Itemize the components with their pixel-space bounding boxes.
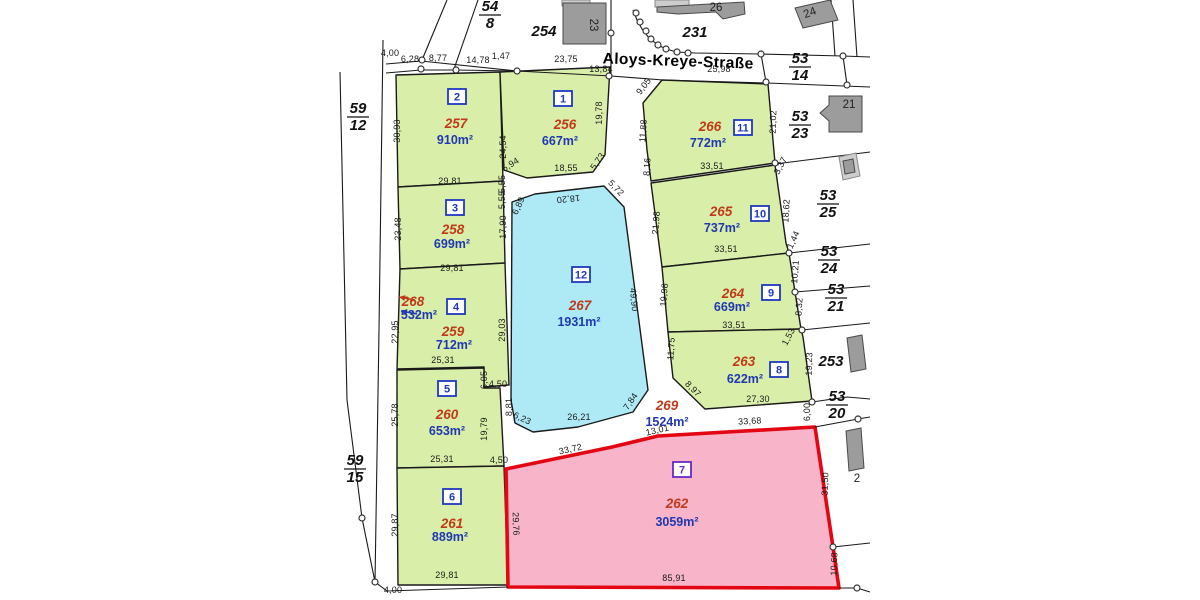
svg-text:59: 59 xyxy=(350,100,367,117)
parcel-257-badge-number: 2 xyxy=(454,92,460,104)
neighbor-parcel-label: 253 xyxy=(817,353,844,370)
dimension-label: 19,98 xyxy=(658,283,670,307)
dimension-label: 22,95 xyxy=(390,320,400,344)
parcel-260-badge-number: 5 xyxy=(444,384,450,396)
boundary-line xyxy=(761,54,766,82)
dimension-label: 30,93 xyxy=(392,119,402,143)
boundary-line xyxy=(375,40,383,582)
dimension-label: 8,32 xyxy=(793,297,804,316)
survey-point-marker xyxy=(648,36,654,42)
parcel-259-number: 259 xyxy=(441,324,465,339)
svg-text:53: 53 xyxy=(792,108,809,125)
parcel-265-badge-number: 10 xyxy=(754,209,766,221)
survey-point-marker xyxy=(633,10,639,16)
boundary-line xyxy=(833,543,870,547)
survey-point-marker xyxy=(799,327,805,333)
dimension-label: 4,50 xyxy=(490,455,508,465)
parcel-258-number: 258 xyxy=(441,222,465,237)
dimension-label: 11,75 xyxy=(665,337,677,361)
dimension-label: 19,23 xyxy=(804,352,815,376)
neighbor-parcel-label: 5320 xyxy=(826,388,848,422)
svg-text:53: 53 xyxy=(821,243,838,260)
parcel-264-area: 669m² xyxy=(714,300,750,314)
dimension-label: 23,75 xyxy=(554,54,578,64)
dimension-label: 25,31 xyxy=(430,454,454,464)
dimension-label: 33,51 xyxy=(700,161,724,171)
dimension-label: 1,47 xyxy=(492,51,510,61)
boundary-line xyxy=(340,72,375,582)
dimension-label: 29,81 xyxy=(438,176,462,186)
dimension-label: 29,87 xyxy=(390,513,400,537)
parcel-263-number: 263 xyxy=(732,354,756,369)
boundary-line xyxy=(853,0,857,57)
parcel-264-badge-number: 9 xyxy=(768,288,774,300)
neighbor-parcel-label: 5325 xyxy=(817,187,839,221)
boundary-line xyxy=(422,0,447,60)
dimension-label: 17,90 xyxy=(498,215,508,239)
survey-point-marker xyxy=(792,289,798,295)
dimension-label: 21,02 xyxy=(768,110,779,134)
survey-point-marker xyxy=(786,250,792,256)
building xyxy=(820,96,862,132)
parcel-261-number: 261 xyxy=(440,516,464,531)
building xyxy=(843,159,855,174)
parcel-267-number: 267 xyxy=(568,298,593,313)
parcel-256-badge-number: 1 xyxy=(560,94,566,106)
dimension-label: 19,79 xyxy=(479,417,489,441)
survey-point-marker xyxy=(637,19,643,25)
building xyxy=(846,428,864,471)
neighbor-parcel-label: 254 xyxy=(530,23,557,40)
svg-text:53: 53 xyxy=(828,281,845,298)
dimension-label: 27,30 xyxy=(746,394,770,404)
neighbor-parcel-label: 231 xyxy=(681,24,707,41)
svg-text:20: 20 xyxy=(828,405,846,422)
parcel-263-area: 622m² xyxy=(727,372,763,386)
dimension-label: 6,00 xyxy=(802,403,812,421)
survey-point-marker xyxy=(854,585,860,591)
boundary-line xyxy=(761,54,870,57)
survey-point-marker xyxy=(643,28,649,34)
neighbor-parcel-label: 5912 xyxy=(347,100,369,134)
parcel-266-area: 772m² xyxy=(690,136,726,150)
survey-point-marker xyxy=(418,66,424,72)
parcel-257-number: 257 xyxy=(444,116,469,131)
survey-point-marker xyxy=(608,30,614,36)
dimension-label: 21,98 xyxy=(650,211,662,235)
parcel-259-badge-number: 4 xyxy=(453,302,460,314)
dimension-label: 29,76 xyxy=(511,512,522,536)
survey-point-marker xyxy=(844,82,850,88)
dimension-label: 33,68 xyxy=(738,415,762,426)
dimension-label: 29,03 xyxy=(497,318,507,342)
parcel-261-area: 889m² xyxy=(432,530,468,544)
dimension-label: 29,81 xyxy=(435,570,459,580)
dimension-label: 14,78 xyxy=(466,55,490,65)
parcel-264-number: 264 xyxy=(721,286,745,301)
parcel-269-number: 269 xyxy=(655,398,679,413)
dimension-label: 26,21 xyxy=(567,412,591,422)
dimension-label: 49,90 xyxy=(628,288,640,312)
survey-point-marker xyxy=(763,79,769,85)
dimension-label: 25,78 xyxy=(390,403,400,427)
dimension-label: 24,54 xyxy=(498,135,508,159)
neighbor-parcel-label: 5323 xyxy=(789,108,811,142)
survey-point-marker xyxy=(663,46,669,52)
dimension-label: 4,00 xyxy=(384,585,402,595)
dimension-label: 18,62 xyxy=(780,199,791,223)
cadastral-map-canvas: 4,006,288,7714,781,4723,7513,8425,989,05… xyxy=(0,0,1200,600)
dimension-label: 5,55 xyxy=(497,191,507,209)
parcel-261-badge-number: 6 xyxy=(449,492,455,504)
survey-point-marker xyxy=(758,51,764,57)
survey-point-marker xyxy=(655,42,661,48)
dimension-label: 11,88 xyxy=(637,119,649,143)
dimension-label: 6,28 xyxy=(401,54,419,64)
parcel-263-badge-number: 8 xyxy=(776,365,782,377)
dimension-label: 8,77 xyxy=(429,53,447,63)
svg-text:21: 21 xyxy=(827,298,845,315)
parcel-266-number: 266 xyxy=(698,119,722,134)
survey-point-marker xyxy=(419,57,425,63)
parcel-262-area: 3059m² xyxy=(655,515,698,529)
survey-point-marker xyxy=(372,579,378,585)
survey-point-marker xyxy=(359,515,365,521)
parcel-259-area: 712m² xyxy=(436,338,472,352)
dimension-label: 5,55 xyxy=(497,175,507,193)
svg-text:25: 25 xyxy=(819,204,837,221)
dimension-label: 18,55 xyxy=(554,163,578,173)
parcel-262-badge-number: 7 xyxy=(679,465,685,477)
svg-text:53: 53 xyxy=(792,50,809,67)
survey-point-marker xyxy=(453,67,459,73)
dimension-label: 85,91 xyxy=(662,573,686,583)
parcel-267-area: 1931m² xyxy=(557,315,600,329)
parcel-260-area: 653m² xyxy=(429,424,465,438)
building xyxy=(847,335,866,372)
parcel-256-area: 667m² xyxy=(542,134,578,148)
svg-text:8: 8 xyxy=(486,15,495,32)
svg-text:14: 14 xyxy=(792,67,809,84)
dimension-label: 33,51 xyxy=(722,320,746,330)
dimension-label: 10,68 xyxy=(829,552,840,576)
neighbor-parcel-label: 5324 xyxy=(818,243,840,277)
neighbor-parcel-label: 5915 xyxy=(344,452,366,486)
svg-text:53: 53 xyxy=(820,187,837,204)
survey-point-marker xyxy=(514,68,520,74)
parcel-269-area: 1524m² xyxy=(645,415,688,429)
neighbor-parcel-label: 548 xyxy=(479,0,501,32)
parcel-256-number: 256 xyxy=(553,117,577,132)
dimension-label: 6,05 xyxy=(479,371,489,389)
boundary-line xyxy=(802,323,870,330)
parcel-265-number: 265 xyxy=(709,204,733,219)
house-number-label: 2 xyxy=(854,473,860,485)
cadastral-map: 4,006,288,7714,781,4723,7513,8425,989,05… xyxy=(0,0,1200,600)
dimension-label: 10,21 xyxy=(789,260,801,284)
boundary-line xyxy=(843,56,847,85)
parcel-260-number: 260 xyxy=(435,407,459,422)
dimension-label: 19,78 xyxy=(594,101,604,125)
dimension-label: 8,81 xyxy=(504,398,514,416)
svg-text:53: 53 xyxy=(829,388,846,405)
parcel-258-area: 699m² xyxy=(434,237,470,251)
neighbor-parcel-label: 5314 xyxy=(789,50,811,84)
svg-text:15: 15 xyxy=(347,469,364,486)
house-number-label: 26 xyxy=(710,2,723,14)
survey-point-marker xyxy=(830,544,836,550)
dimension-label: 8,16 xyxy=(641,157,652,176)
parcel-265-area: 737m² xyxy=(704,221,740,235)
svg-text:24: 24 xyxy=(820,260,838,277)
svg-text:23: 23 xyxy=(791,125,809,142)
dimension-label: 25,31 xyxy=(431,355,455,365)
survey-point-marker xyxy=(840,53,846,59)
svg-text:12: 12 xyxy=(350,117,367,134)
dimension-label: 4,50 xyxy=(489,379,507,389)
parcel-267-badge-number: 12 xyxy=(575,270,587,282)
survey-point-marker xyxy=(855,416,861,422)
dimension-label: 23,48 xyxy=(393,217,403,241)
dimension-label: 31,50 xyxy=(820,472,831,496)
parcel-257-area: 910m² xyxy=(437,133,473,147)
parcel-262-number: 262 xyxy=(665,496,689,511)
parcel-266-badge-number: 11 xyxy=(737,123,749,135)
neighbor-parcel-label: 5321 xyxy=(825,281,847,315)
house-number-label: 21 xyxy=(843,99,856,111)
dimension-label: 33,51 xyxy=(714,244,738,254)
svg-text:54: 54 xyxy=(482,0,499,15)
svg-text:59: 59 xyxy=(347,452,364,469)
dimension-label: 1,44 xyxy=(785,229,802,250)
dimension-label: 29,81 xyxy=(440,263,464,273)
parcel-258-badge-number: 3 xyxy=(452,203,458,215)
dimension-label: 4,00 xyxy=(381,48,399,58)
house-number-label: 23 xyxy=(587,19,599,32)
